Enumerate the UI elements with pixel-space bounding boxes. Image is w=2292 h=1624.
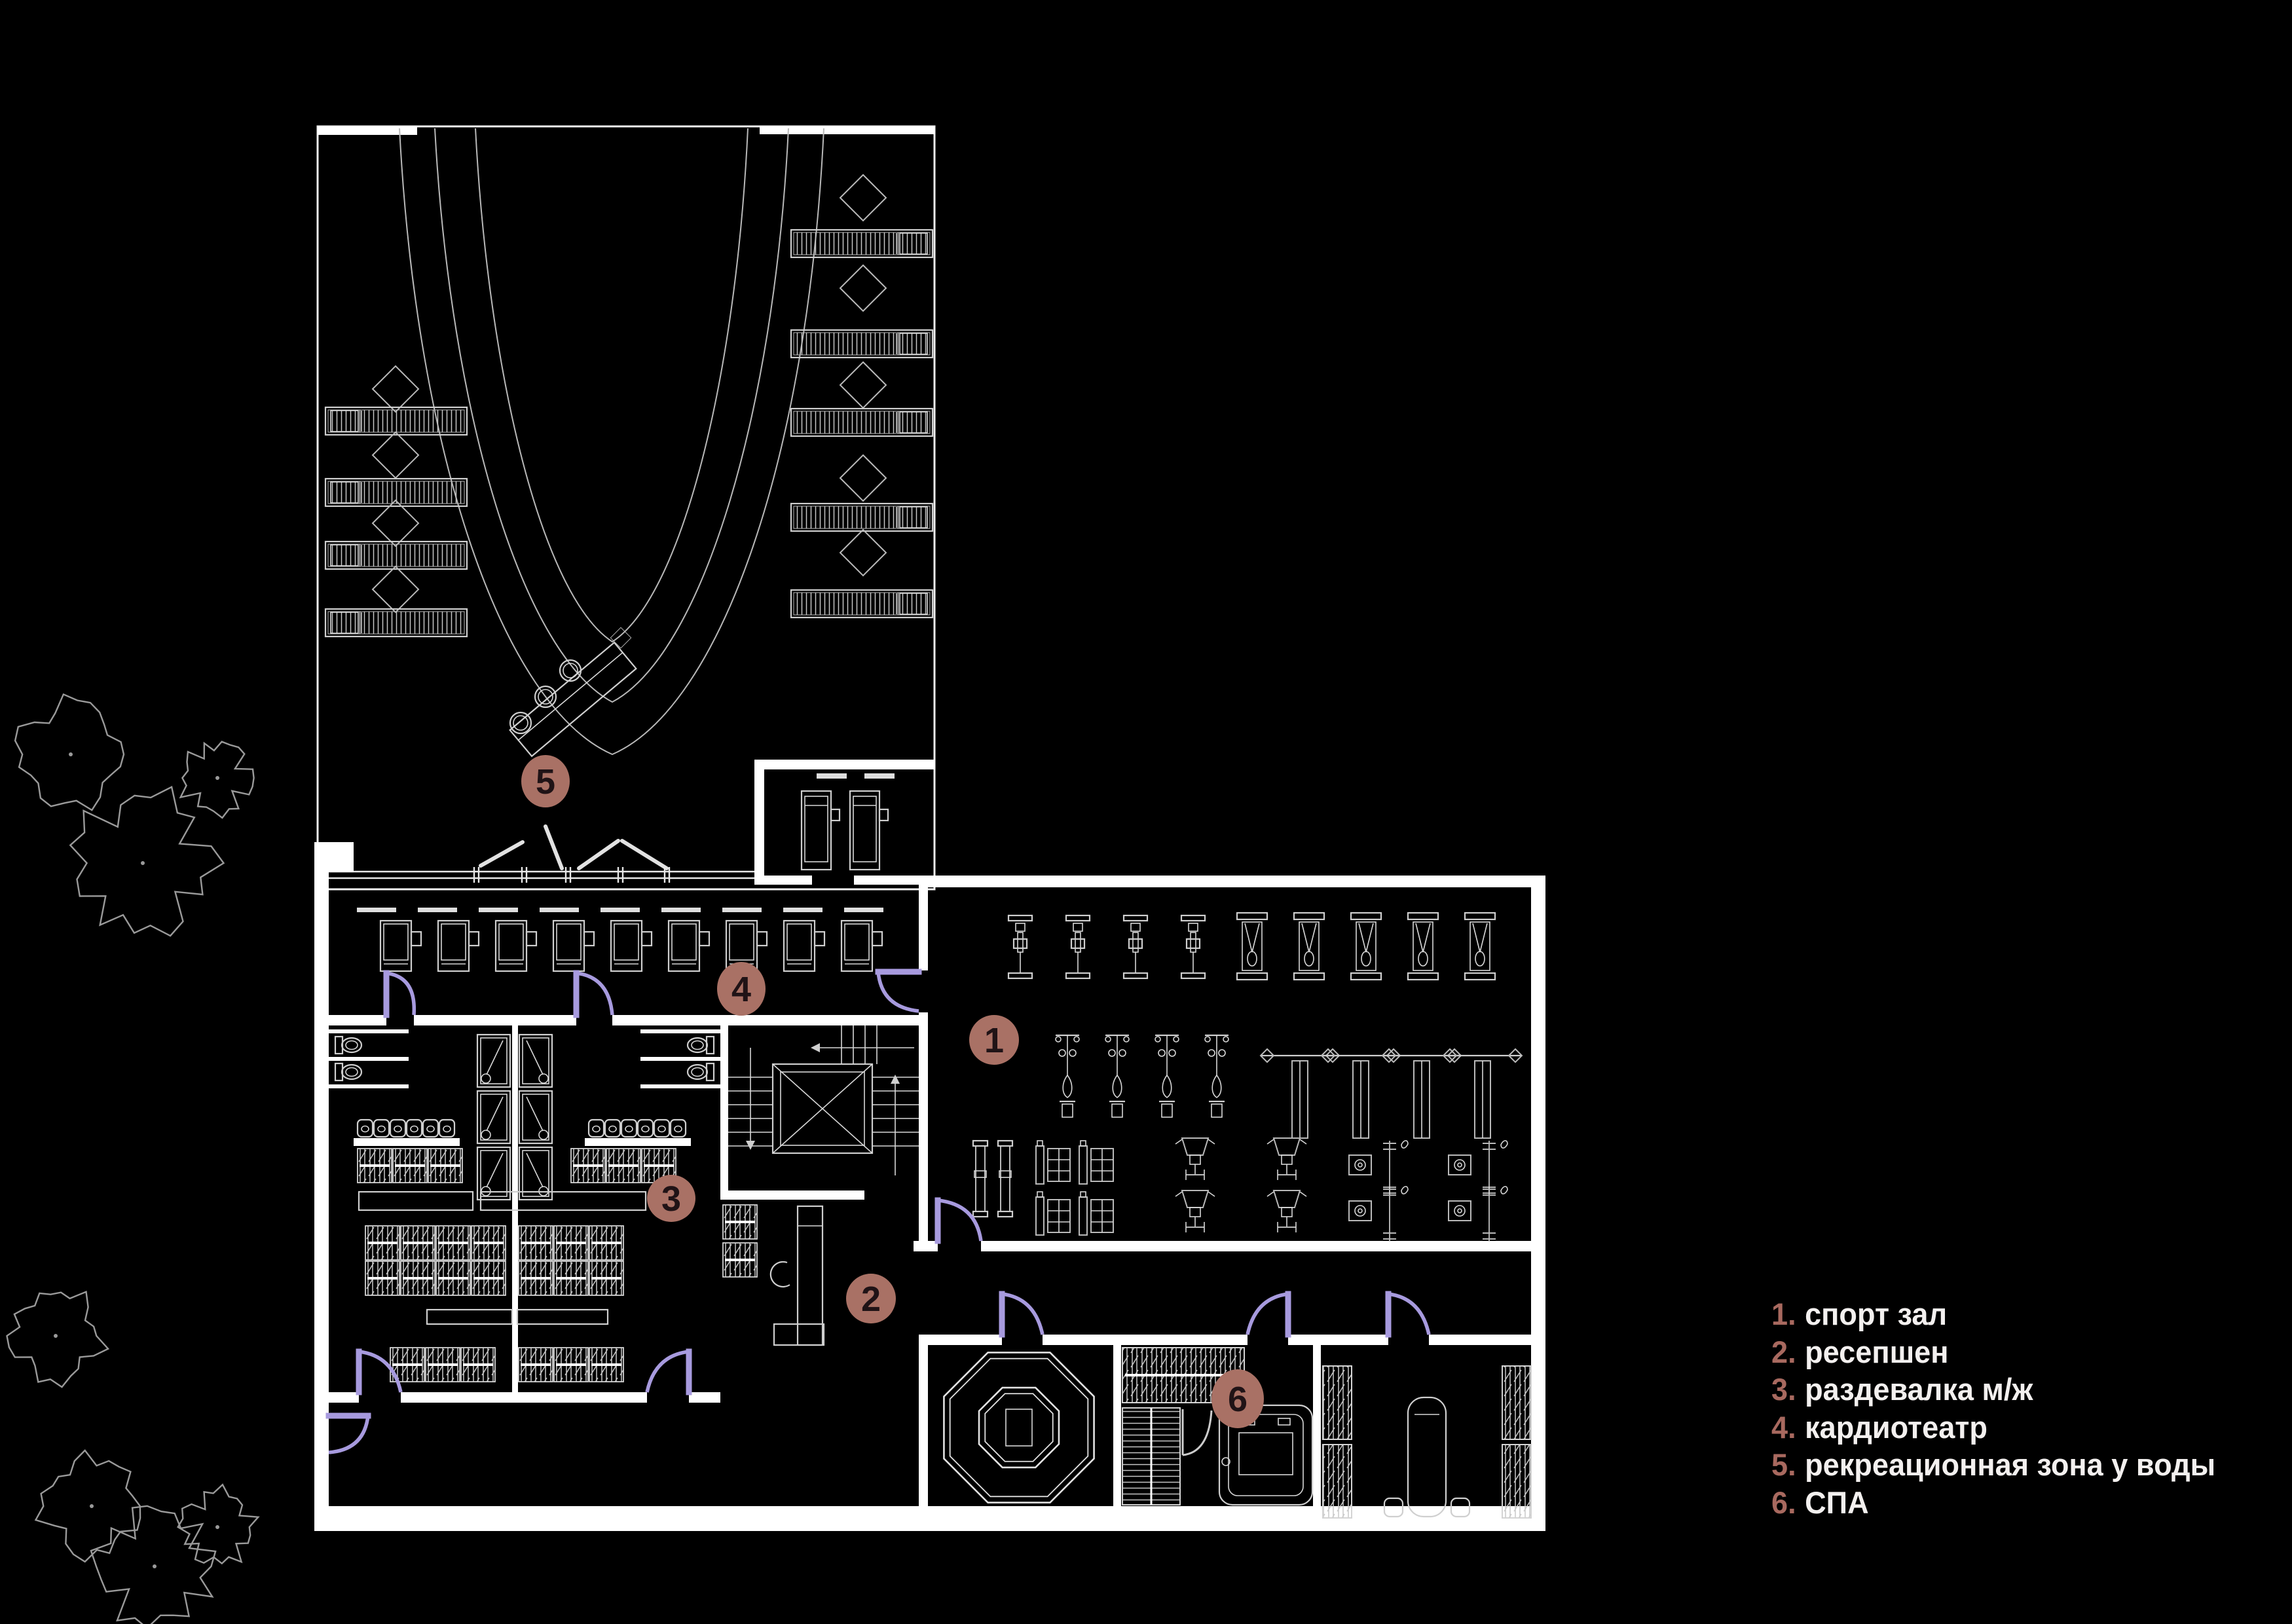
zone-marker-5: 5 [521, 755, 570, 807]
zone-marker-2: 2 [846, 1274, 896, 1323]
legend-item-2: 2. ресепшен [1771, 1333, 2215, 1371]
legend-item-1: 1. спорт зал [1771, 1295, 2215, 1333]
octagon-pool-outline [979, 1388, 1059, 1467]
stair-core [728, 1025, 919, 1175]
tree-icon [15, 694, 124, 810]
floor-plan-page: { "title": "fitness club floor plan", "l… [0, 0, 2292, 1624]
sauna-benches [1122, 1408, 1211, 1505]
deck-slats [481, 826, 667, 868]
spa-octagon-pool [944, 1352, 1094, 1502]
cardio-theater [357, 908, 883, 971]
tree-center-dot [69, 752, 73, 756]
svg-text:2: 2 [861, 1280, 881, 1319]
svg-text:6: 6 [1228, 1380, 1248, 1419]
tree-icon [7, 1292, 109, 1387]
tree-center-dot [215, 776, 219, 780]
massage-room [1323, 1366, 1531, 1518]
octagon-pool-outline [944, 1352, 1094, 1502]
zone-marker-4: 4 [717, 962, 766, 1016]
tree-center-dot [90, 1504, 94, 1508]
tree-center-dot [54, 1334, 58, 1338]
legend: 1. спорт зал 2. ресепшен 3. раздевалка м… [1771, 1295, 2215, 1521]
legend-item-3: 3. раздевалка м/ж [1771, 1371, 2215, 1409]
tree-icon [178, 1485, 259, 1563]
zone-marker-1: 1 [969, 1015, 1019, 1065]
reception [723, 1205, 824, 1345]
zone-marker-3: 3 [647, 1175, 695, 1222]
pool-outline [399, 128, 824, 754]
legend-item-4: 4. кардиотеатр [1771, 1409, 2215, 1447]
pool-bar [510, 627, 637, 756]
svg-text:5: 5 [536, 762, 555, 802]
octagon-pool-outline [950, 1359, 1088, 1497]
trees [7, 694, 259, 1624]
gym [973, 913, 1522, 1242]
vestibule [754, 760, 935, 877]
octagon-pool-outline [985, 1393, 1052, 1461]
legend-item-6: 6. СПА [1771, 1484, 2215, 1522]
tree-center-dot [153, 1564, 157, 1568]
glass-wall [329, 867, 754, 883]
legend-item-5: 5. рекреационная зона у воды [1771, 1446, 2215, 1484]
tree-icon [36, 1450, 141, 1562]
tree-center-dot [141, 861, 145, 865]
svg-text:3: 3 [661, 1179, 681, 1219]
zone-marker-6: 6 [1211, 1369, 1264, 1428]
svg-text:4: 4 [731, 970, 751, 1009]
reception-desk [771, 1206, 824, 1345]
zone-markers: 1 2 3 4 5 6 [521, 755, 1264, 1428]
svg-text:1: 1 [984, 1021, 1004, 1060]
tree-center-dot [215, 1525, 219, 1529]
